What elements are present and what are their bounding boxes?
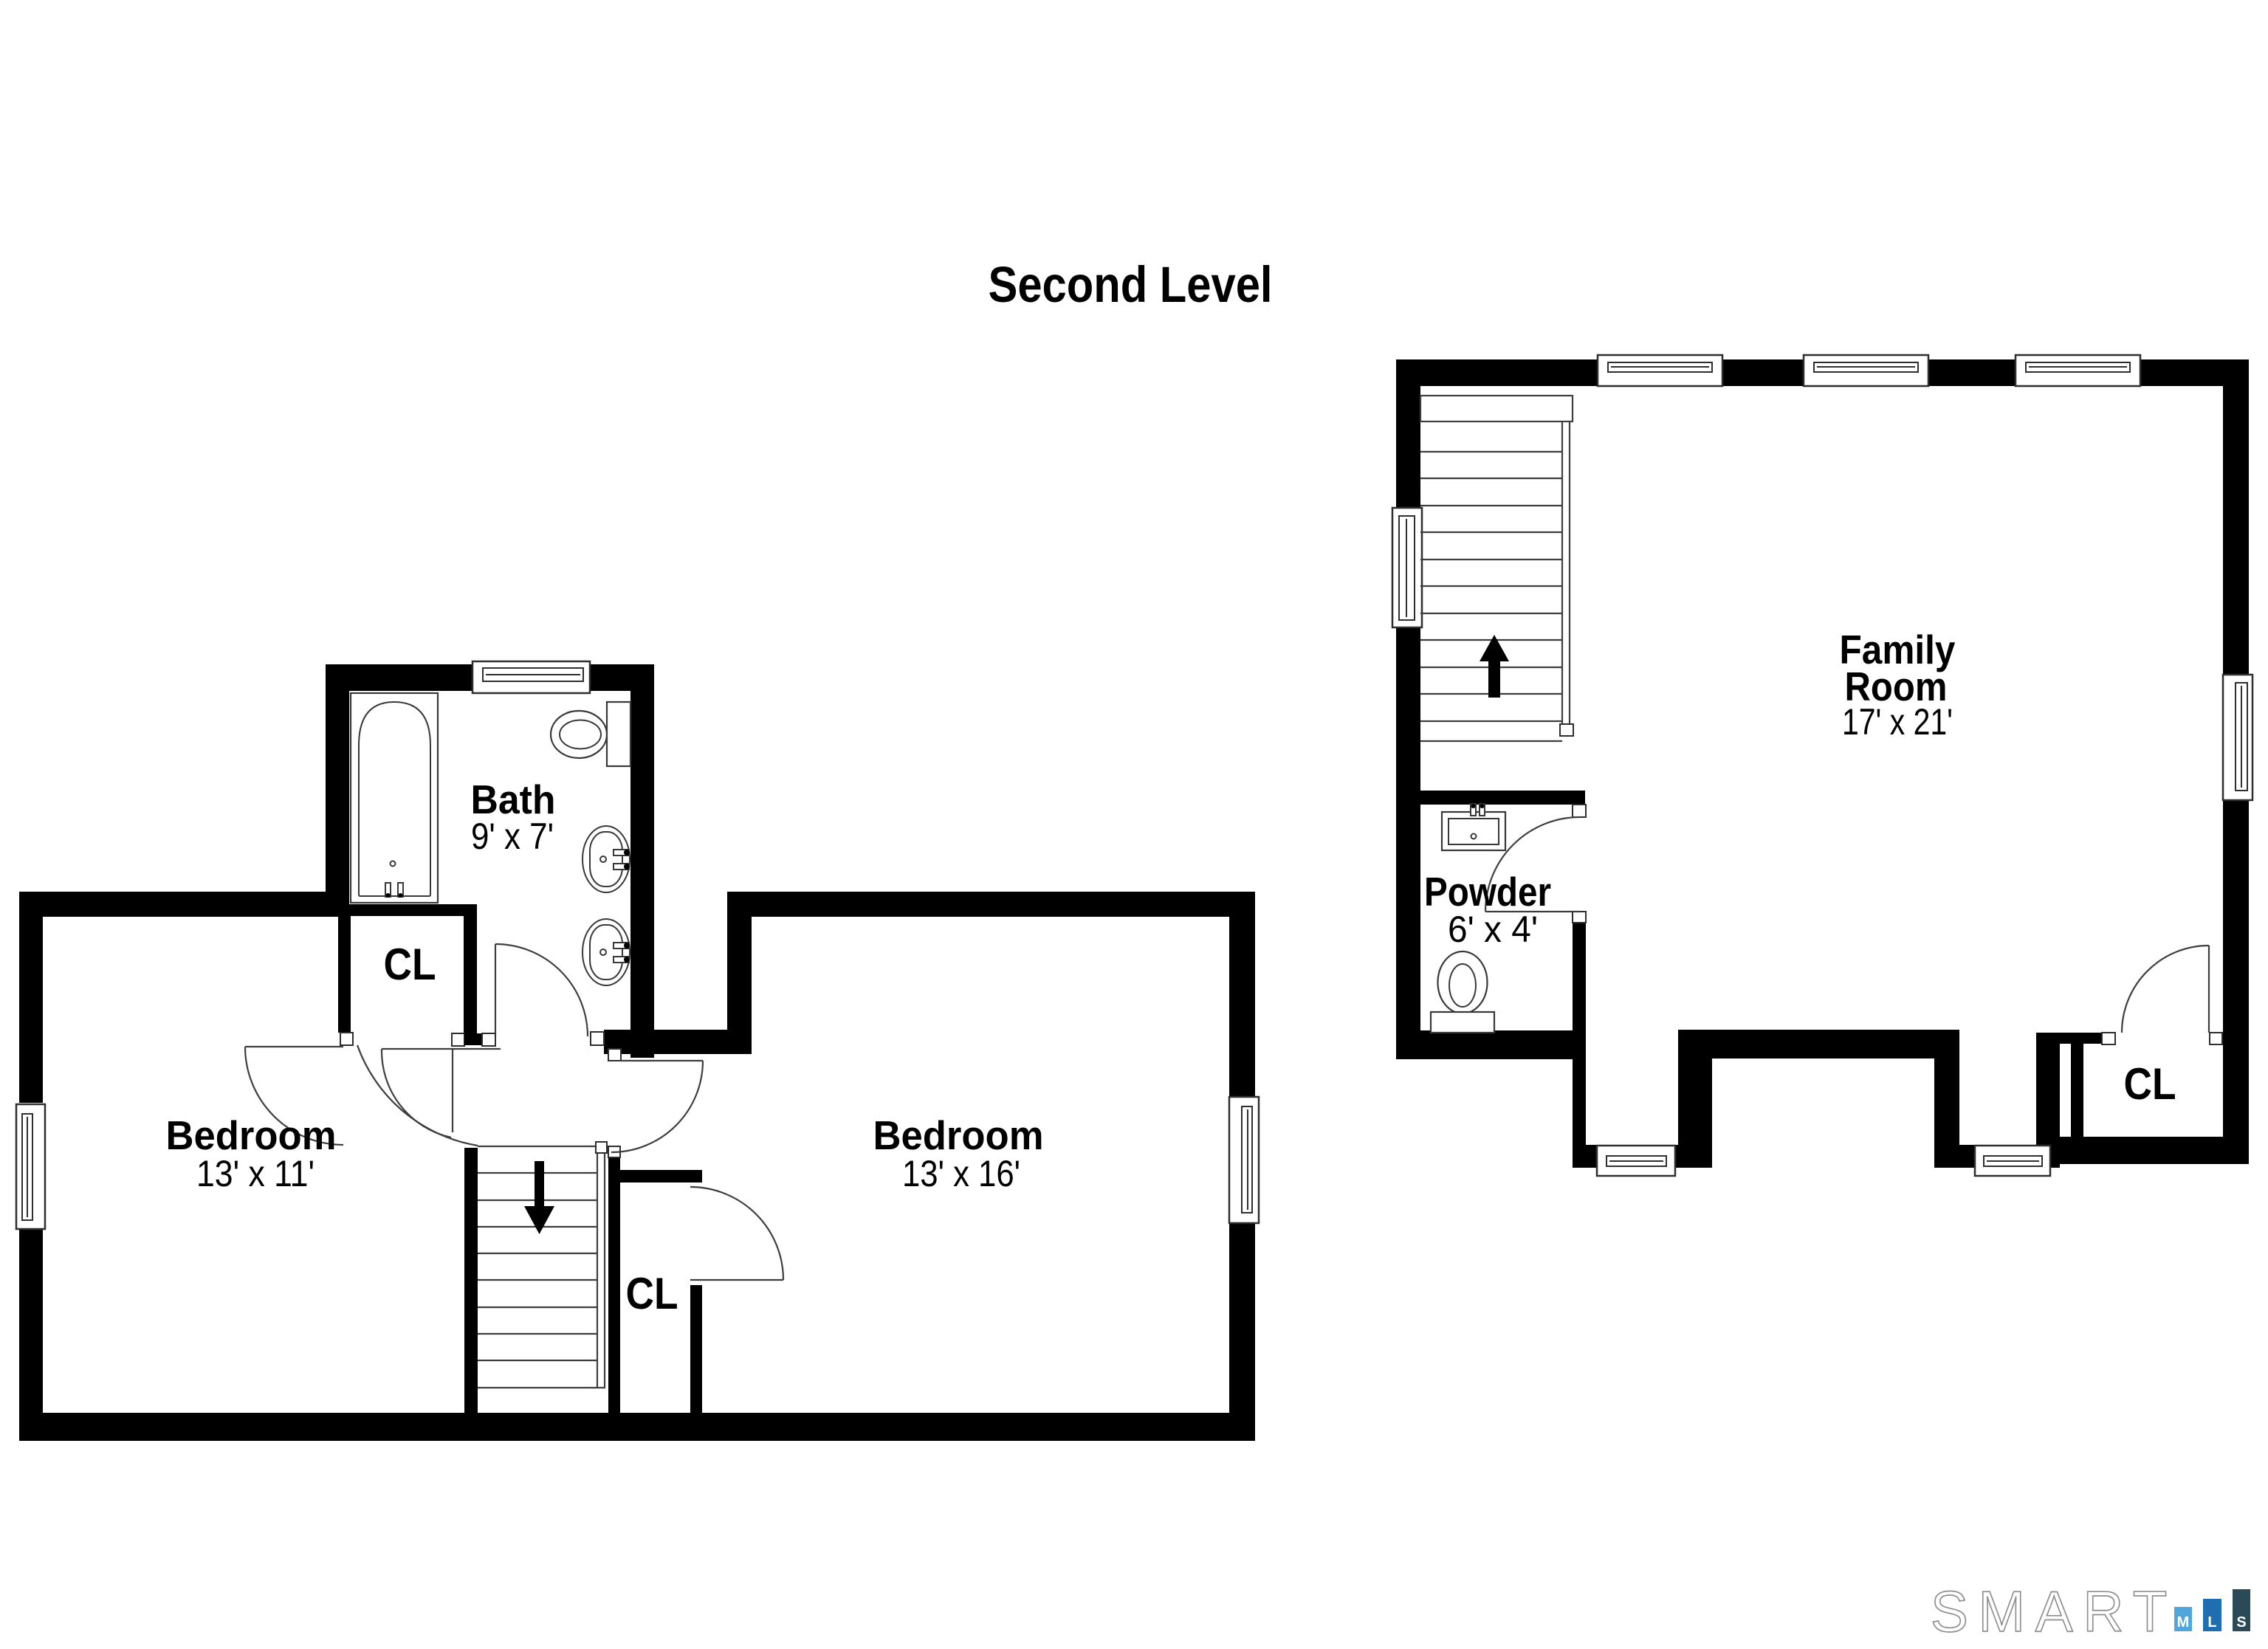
svg-text:CL: CL (384, 940, 436, 989)
svg-text:Second Level: Second Level (989, 256, 1273, 313)
svg-text:L: L (2207, 1614, 2216, 1631)
svg-text:M: M (2177, 1614, 2190, 1631)
svg-text:9' x 7': 9' x 7' (471, 816, 554, 857)
svg-text:Bedroom: Bedroom (166, 1112, 337, 1158)
svg-text:6' x 4': 6' x 4' (1448, 909, 1538, 950)
svg-text:S: S (2236, 1614, 2246, 1631)
svg-text:13' x 11': 13' x 11' (196, 1153, 315, 1194)
svg-text:Bedroom: Bedroom (873, 1112, 1044, 1158)
svg-text:CL: CL (2124, 1059, 2176, 1109)
svg-text:17' x 21': 17' x 21' (1842, 701, 1953, 743)
svg-text:CL: CL (626, 1269, 678, 1318)
svg-text:Powder: Powder (1424, 869, 1551, 915)
svg-text:13' x 16': 13' x 16' (902, 1153, 1020, 1194)
svg-text:SMART: SMART (1931, 1579, 2177, 1644)
